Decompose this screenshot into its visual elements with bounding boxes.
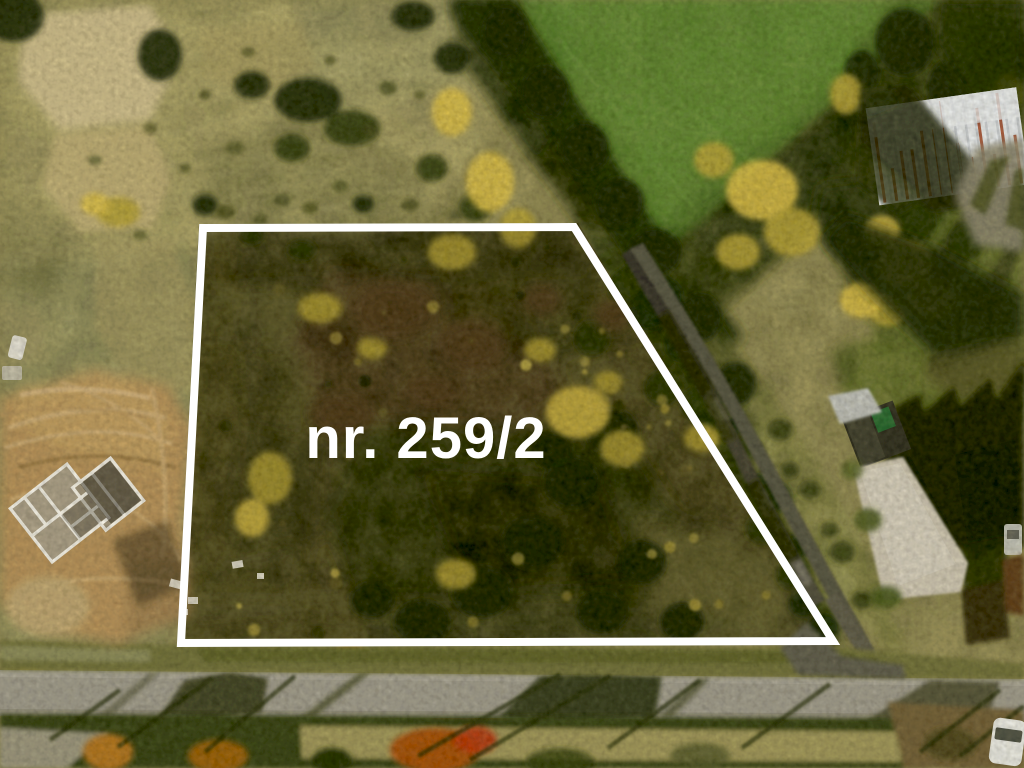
svg-text:nr. 259/2: nr. 259/2 [305,406,546,471]
